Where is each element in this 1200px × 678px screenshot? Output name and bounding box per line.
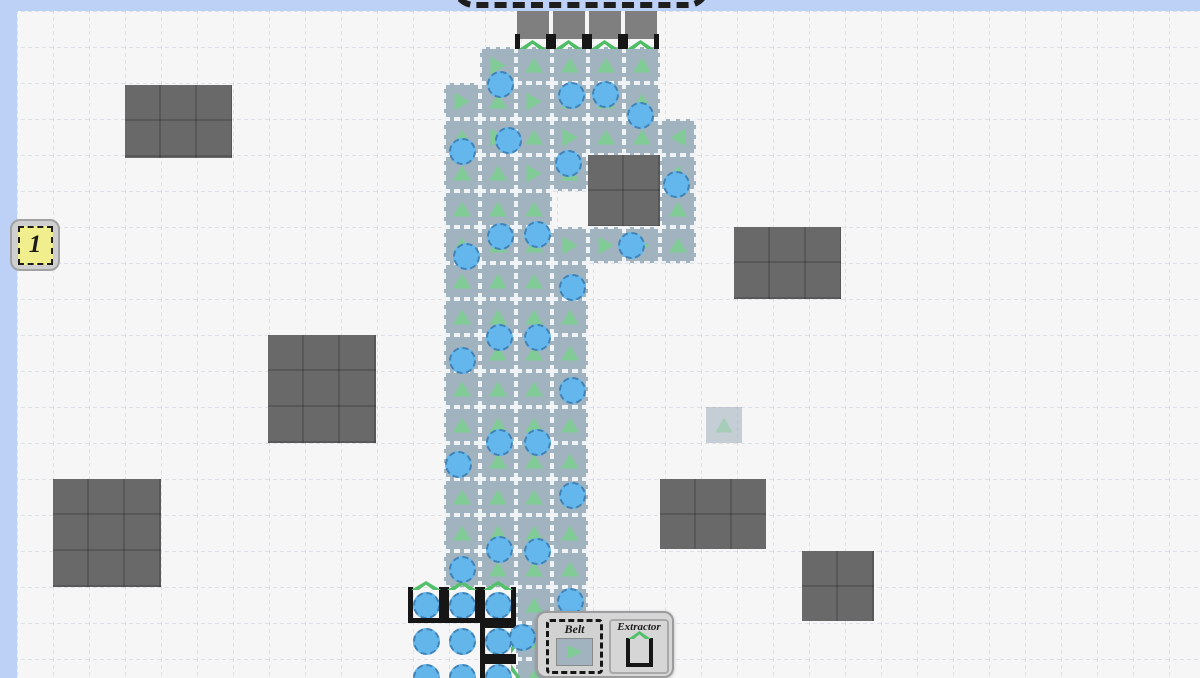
rock-obstacle (125, 85, 232, 158)
blue-resource-node[interactable] (449, 628, 476, 655)
belt-item-circle (559, 274, 586, 301)
belt-item-circle (495, 127, 522, 154)
belt-arrow-icon (525, 454, 543, 469)
belt-arrow-icon (525, 310, 543, 325)
belt-arrow-icon (597, 58, 615, 73)
belt-arrow-icon (525, 202, 543, 217)
port-bracket-left (515, 34, 520, 49)
belt-arrow-icon (561, 310, 579, 325)
belt-arrow-icon (561, 346, 579, 361)
belt-tile[interactable] (480, 191, 516, 227)
rock-obstacle (660, 479, 766, 549)
belt-item-circle (559, 377, 586, 404)
belt-tile[interactable] (480, 371, 516, 407)
belt-item-circle (555, 150, 582, 177)
belt-tile[interactable] (444, 191, 480, 227)
belt-tile[interactable] (516, 47, 552, 83)
game-viewport: 1 Belt Extractor (0, 0, 1200, 678)
belt-tile[interactable] (444, 515, 480, 551)
belt-slot-label: Belt (549, 622, 600, 637)
belt-arrow-icon (453, 418, 471, 433)
belt-arrow-icon (669, 202, 687, 217)
belt-arrow-icon (527, 92, 542, 110)
rock-obstacle (268, 335, 376, 443)
belt-item-circle (524, 221, 551, 248)
belt-item-circle (453, 243, 480, 270)
extractor-machine[interactable] (480, 659, 516, 678)
belt-item-circle (486, 429, 513, 456)
blue-resource-node[interactable] (413, 628, 440, 655)
belt-tile[interactable] (660, 119, 696, 155)
build-toolbar: Belt Extractor (536, 611, 674, 678)
world-edge-left (0, 0, 17, 678)
belt-arrow-icon (453, 382, 471, 397)
belt-tile[interactable] (552, 551, 588, 587)
belt-tile[interactable] (444, 371, 480, 407)
belt-placement-ghost (706, 407, 742, 443)
belt-arrow-icon (453, 166, 471, 181)
extractor-machine[interactable] (480, 587, 516, 623)
belt-arrow-icon (489, 382, 507, 397)
belt-tile[interactable] (516, 83, 552, 119)
belt-tile[interactable] (660, 227, 696, 263)
belt-item-circle (627, 102, 654, 129)
belt-item-circle (524, 324, 551, 351)
belt-arrow-icon (561, 454, 579, 469)
toolbar-slot-belt[interactable]: Belt (546, 619, 603, 674)
belt-item-circle (559, 482, 586, 509)
belt-item-circle (449, 347, 476, 374)
port-bracket-left (587, 34, 592, 49)
belt-arrow-icon (525, 130, 543, 145)
belt-tile[interactable] (516, 479, 552, 515)
level-badge[interactable]: 1 (10, 219, 60, 271)
belt-tile[interactable] (552, 407, 588, 443)
extractor-machine[interactable] (444, 587, 480, 623)
belt-tile[interactable] (444, 83, 480, 119)
belt-item-circle (558, 82, 585, 109)
level-number: 1 (18, 226, 53, 265)
belt-arrow-icon (489, 202, 507, 217)
belt-arrow-icon (525, 382, 543, 397)
ghost-arrow-icon (715, 418, 733, 433)
belt-item-circle (449, 556, 476, 583)
rock-obstacle (802, 551, 874, 621)
belt-arrow-icon (563, 128, 578, 146)
belt-tile[interactable] (444, 479, 480, 515)
extractor-machine[interactable] (408, 587, 444, 623)
belt-item-circle (486, 536, 513, 563)
belt-arrow-icon (453, 202, 471, 217)
belt-arrow-icon (455, 92, 470, 110)
belt-arrow-icon (561, 562, 579, 577)
belt-tile[interactable] (552, 443, 588, 479)
belt-arrow-icon (453, 526, 471, 541)
belt-tile[interactable] (552, 47, 588, 83)
belt-tile[interactable] (624, 47, 660, 83)
belt-tile[interactable] (588, 47, 624, 83)
hub-input-port (625, 11, 657, 39)
belt-arrow-icon (453, 490, 471, 505)
belt-arrow-icon (633, 130, 651, 145)
belt-arrow-icon (527, 164, 542, 182)
belt-arrow-icon (453, 274, 471, 289)
belt-item-circle (663, 171, 690, 198)
belt-tile[interactable] (480, 479, 516, 515)
belt-arrow-icon (525, 598, 543, 613)
belt-item-circle (487, 71, 514, 98)
belt-arrow-icon (671, 128, 686, 146)
extractor-slot-label: Extractor (611, 621, 667, 633)
belt-tile[interactable] (480, 263, 516, 299)
belt-item-circle (486, 324, 513, 351)
belt-tile[interactable] (552, 515, 588, 551)
belt-item-circle (524, 538, 551, 565)
belt-item-circle (509, 624, 536, 651)
belt-arrow-icon (599, 236, 614, 254)
belt-item-circle (449, 138, 476, 165)
belt-arrow-icon (489, 490, 507, 505)
rock-obstacle (588, 155, 660, 226)
hub-input-port (553, 11, 585, 39)
belt-arrow-icon (489, 274, 507, 289)
port-bracket-left (551, 34, 556, 49)
belt-arrow-icon (489, 166, 507, 181)
belt-arrow-icon (561, 418, 579, 433)
belt-arrow-icon (597, 130, 615, 145)
toolbar-slot-extractor[interactable]: Extractor (609, 619, 669, 674)
belt-tile[interactable] (516, 155, 552, 191)
extractor-icon (626, 638, 653, 667)
hub-input-port (517, 11, 549, 39)
belt-tile[interactable] (444, 407, 480, 443)
belt-arrow-icon (489, 310, 507, 325)
belt-arrow-icon (525, 490, 543, 505)
belt-tile[interactable] (516, 371, 552, 407)
rock-obstacle (53, 479, 161, 587)
belt-tile[interactable] (588, 119, 624, 155)
belt-tile[interactable] (444, 299, 480, 335)
belt-tile[interactable] (552, 227, 588, 263)
belt-arrow-icon (633, 58, 651, 73)
belt-arrow-icon (561, 58, 579, 73)
belt-arrow-icon (561, 526, 579, 541)
belt-icon (556, 638, 593, 666)
belt-item-circle (524, 429, 551, 456)
belt-arrow-icon (525, 274, 543, 289)
belt-arrow-icon (489, 562, 507, 577)
belt-item-circle (445, 451, 472, 478)
port-bracket-right (654, 34, 659, 49)
belt-tile[interactable] (480, 155, 516, 191)
port-bracket-left (623, 34, 628, 49)
belt-item-circle (592, 81, 619, 108)
belt-item-circle (487, 223, 514, 250)
belt-arrow-icon (489, 454, 507, 469)
belt-arrow-icon (669, 238, 687, 253)
hub-input-port (589, 11, 621, 39)
belt-arrow-icon (525, 58, 543, 73)
belt-tile[interactable] (516, 263, 552, 299)
hub-building-outline (452, 0, 710, 8)
belt-tile[interactable] (552, 335, 588, 371)
belt-item-circle (618, 232, 645, 259)
belt-arrow-icon (453, 310, 471, 325)
rock-obstacle (734, 227, 841, 299)
belt-arrow-icon (563, 236, 578, 254)
belt-tile[interactable] (552, 299, 588, 335)
